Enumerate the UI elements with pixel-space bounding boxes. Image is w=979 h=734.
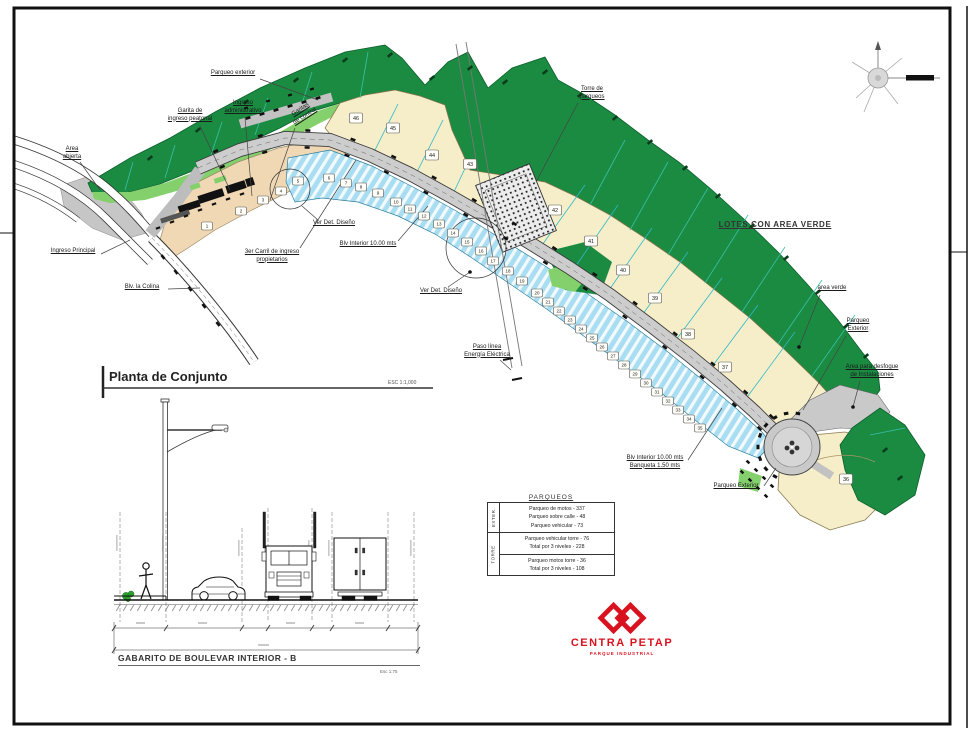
lot-tag-23: 23 [565,316,576,324]
dimension-lines [112,622,420,654]
lot-tag-34: 34 [684,415,695,423]
lot-tag-16: 16 [476,247,487,255]
svg-text:39: 39 [652,296,658,302]
lot-tag-40: 40 [617,265,630,275]
svg-text:28: 28 [621,363,627,368]
svg-text:27: 27 [610,354,616,359]
lot-tag-38: 38 [682,329,695,339]
site-plan-drawing: 1234567891011121314151617181920212223242… [0,0,979,734]
parking-row: Parqueo vehicular - 73 [502,522,612,530]
svg-text:21: 21 [545,300,551,305]
roundabout [764,419,820,475]
parking-table-torre-label: TORRE [488,533,500,575]
lot-tag-45: 45 [387,123,400,133]
lot-tag-24: 24 [576,325,587,333]
callout-area-verde: area verde [818,285,847,293]
truck-front [262,512,316,601]
svg-text:29: 29 [632,372,638,377]
svg-text:40: 40 [620,268,626,274]
svg-text:32: 32 [665,399,671,404]
lot-tag-12: 12 [419,212,430,220]
lot-tag-5: 5 [293,177,304,185]
svg-text:13: 13 [436,222,442,227]
callout-blv-interior-2: Blv Interior 10.00 mts Banqueta 1.50 mts [627,455,684,470]
svg-text:30: 30 [643,381,649,386]
lot-tag-10: 10 [391,198,402,206]
svg-text:37: 37 [722,365,728,371]
svg-text:10: 10 [393,200,399,205]
lot-tag-31: 31 [652,388,663,396]
svg-text:43: 43 [467,162,473,168]
callout-parqueo-exterior-top: Parqueo exterior [211,70,255,78]
pedestrian-figure [139,563,153,599]
lot-tag-44: 44 [426,150,439,160]
callout-lotes-con-area-verde: LOTES CON AREA VERDE [719,220,832,230]
section-drawing [103,366,433,654]
svg-text:22: 22 [556,309,562,314]
svg-text:20: 20 [534,291,540,296]
lot-tag-8: 8 [356,183,367,191]
svg-text:46: 46 [353,116,359,122]
lot-tag-9: 9 [373,189,384,197]
svg-text:44: 44 [429,153,435,159]
parking-table: PARQUEOS EXTER. Parqueo de motos - 337 P… [487,494,615,576]
section-caption: GABARITO DE BOULEVAR INTERIOR - B [118,653,420,666]
lot-tag-32: 32 [663,397,674,405]
callout-parqueo-exterior-bottom: Parqueo Exterior [713,483,758,491]
callout-ingreso-administrativo: Ingreso administrativo [224,100,261,115]
section-scale: Esc 1:75 [380,669,398,674]
lot-tag-15: 15 [462,238,473,246]
svg-text:34: 34 [686,417,692,422]
callout-blv-la-colina: Blv. la Colina [125,284,160,292]
parking-row: Total por 3 niveles - 228 [502,543,612,551]
lot-tag-43: 43 [464,159,477,169]
callout-torre-de-parqueos: Torre de parqueos [579,86,604,101]
lot-tag-6: 6 [324,174,335,182]
lot-tag-11: 11 [405,205,416,213]
parking-row: Parqueo de motos - 337 [502,505,612,513]
lot-tag-39: 39 [649,293,662,303]
svg-text:42: 42 [552,208,558,214]
callout-blv-interior-1: Blv Interior 10.00 mts [340,241,397,249]
svg-text:33: 33 [675,408,681,413]
callout-ver-det-diseno-2: Ver Det. Diseño [420,288,462,296]
lot-tag-4: 4 [276,187,287,195]
callout-garita-ingreso-peatonal: Garita de ingreso peatonal [168,108,212,123]
lot-tag-1: 1 [202,222,213,230]
lot-tag-19: 19 [517,277,528,285]
site-plan-sheet: { "titles": { "plan_title": "Planta de C… [0,0,979,734]
lot-tag-42: 42 [549,205,562,215]
lot-tag-17: 17 [488,257,499,265]
svg-text:11: 11 [408,207,413,212]
lot-tag-21: 21 [543,298,554,306]
plan-scale: ESC 1:1,000 [388,380,416,386]
svg-text:23: 23 [567,318,573,323]
lot-tag-20: 20 [532,289,543,297]
lot-tag-33: 33 [673,406,684,414]
lot-tag-27: 27 [608,352,619,360]
svg-text:17: 17 [490,259,496,264]
lot-tag-3: 3 [258,196,269,204]
lot-tag-46: 46 [350,113,363,123]
parking-row: Parqueo motos torre - 36 [502,557,612,565]
lot-tag-25: 25 [587,334,598,342]
logo-icon [590,600,654,636]
svg-text:19: 19 [519,279,525,284]
parking-row: Total por 3 niveles - 108 [502,565,612,573]
callout-tercer-carril: 3er Carril de ingreso propietarios [245,249,299,264]
lot-tag-22: 22 [554,307,565,315]
parking-row: Parqueo vehicular torre - 76 [502,535,612,543]
lot-tag-41: 41 [585,236,598,246]
svg-text:16: 16 [478,249,484,254]
callout-area-desfogue: Area para desfogue de Instalaciones [846,364,899,379]
logo-tagline: PARQUE INDUSTRIAL [552,651,692,656]
svg-text:18: 18 [505,269,511,274]
svg-text:36: 36 [843,477,849,483]
svg-text:14: 14 [450,231,456,236]
callout-ver-det-diseno-1: Ver Det. Diseño [313,220,355,228]
callout-ingreso-principal: Ingreso Principal [51,248,96,256]
parking-table-exterior-label: EXTER. [488,503,500,532]
street-light-pole [161,399,228,600]
company-logo: CENTRA PETAP PARQUE INDUSTRIAL [552,600,692,656]
lot-tag-30: 30 [641,379,652,387]
svg-text:25: 25 [589,336,595,341]
plan-title: Planta de Conjunto [109,369,227,384]
svg-text:12: 12 [421,214,427,219]
parking-table-title: PARQUEOS [487,494,615,501]
svg-text:26: 26 [599,345,605,350]
lot-tag-28: 28 [619,361,630,369]
lot-tag-36: 36 [840,474,853,484]
box-truck-rear [334,538,386,601]
lot-tag-18: 18 [503,267,514,275]
callout-parqueo-exterior-right: Parqueo Exterior [847,318,870,333]
lot-tag-35: 35 [695,424,706,432]
svg-text:31: 31 [654,390,660,395]
callout-area-abierta: Area abierta [63,146,81,161]
callout-paso-linea: Paso línea Energía Eléctrica [464,344,510,359]
lot-tag-14: 14 [448,229,459,237]
north-compass-icon [852,41,940,112]
svg-text:45: 45 [390,126,396,132]
svg-text:24: 24 [578,327,584,332]
lot-tag-37: 37 [719,362,732,372]
svg-text:35: 35 [697,426,703,431]
svg-text:41: 41 [588,239,594,245]
lot-tag-7: 7 [341,179,352,187]
svg-text:38: 38 [685,332,691,338]
lot-tag-29: 29 [630,370,641,378]
lot-tag-2: 2 [236,207,247,215]
lot-tag-26: 26 [597,343,608,351]
car-silhouette [192,577,245,600]
lot-tag-13: 13 [434,220,445,228]
logo-name: CENTRA PETAP [552,637,692,649]
parking-row: Parqueo sobre calle - 48 [502,513,612,521]
svg-text:15: 15 [464,240,470,245]
